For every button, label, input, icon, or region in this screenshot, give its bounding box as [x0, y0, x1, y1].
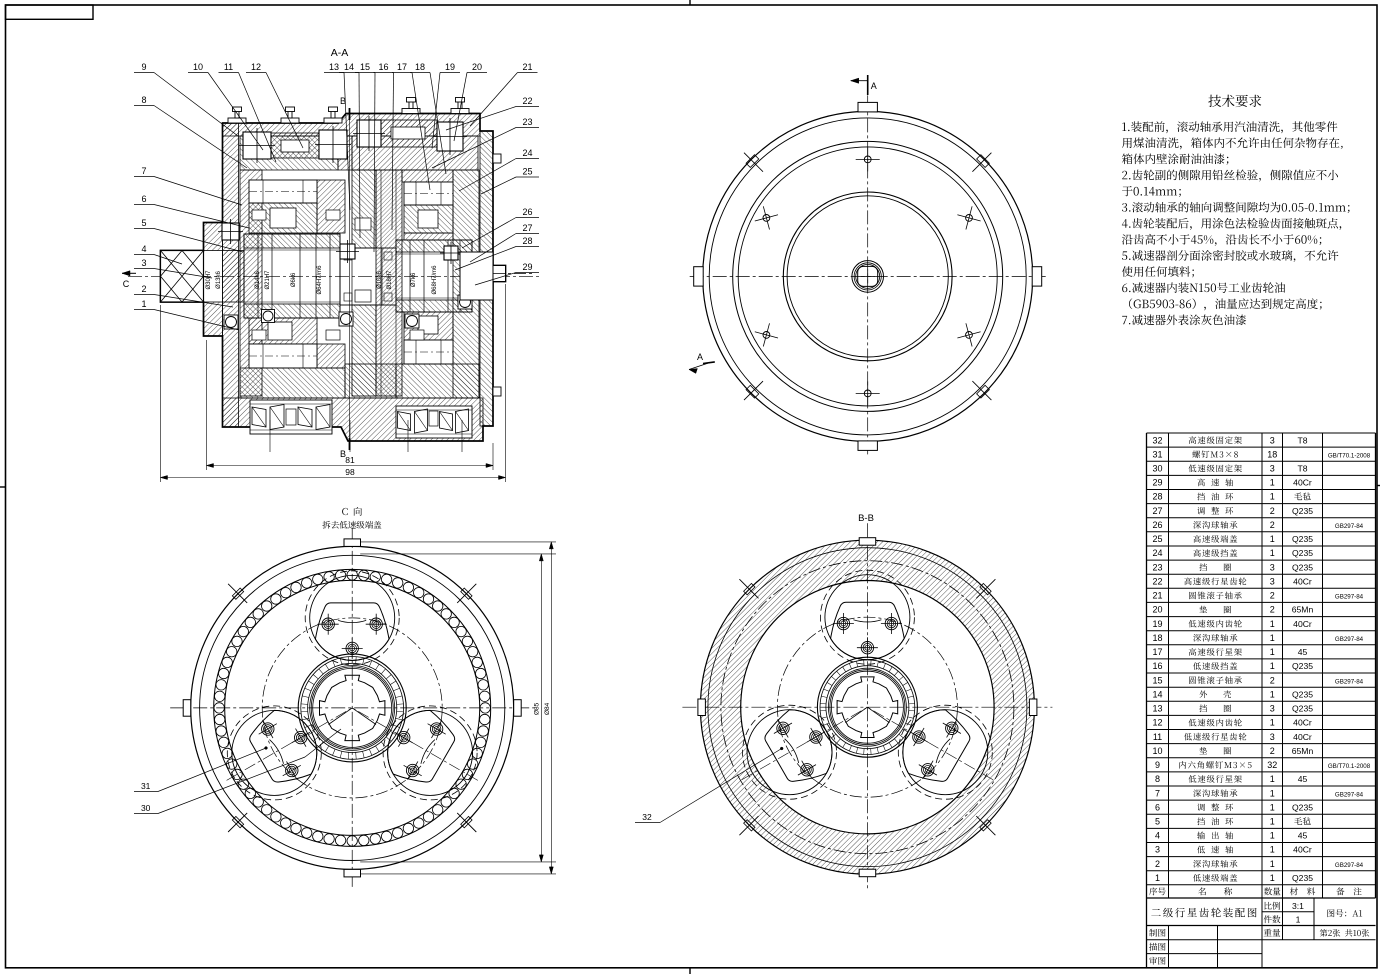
- svg-text:19: 19: [445, 62, 455, 72]
- svg-text:1: 1: [1296, 915, 1301, 925]
- svg-text:2: 2: [1270, 746, 1275, 756]
- svg-text:17: 17: [1152, 647, 1162, 657]
- svg-text:2: 2: [141, 284, 146, 294]
- svg-text:GB297-84: GB297-84: [1335, 678, 1364, 685]
- svg-text:24: 24: [1152, 548, 1162, 558]
- svg-text:21: 21: [522, 62, 532, 72]
- svg-text:65Mn: 65Mn: [1292, 605, 1314, 615]
- svg-text:20: 20: [472, 62, 482, 72]
- svg-text:13: 13: [329, 62, 339, 72]
- svg-text:32: 32: [1267, 760, 1277, 770]
- svg-text:C: C: [123, 279, 130, 289]
- svg-text:3: 3: [141, 258, 146, 268]
- svg-text:12: 12: [251, 62, 261, 72]
- svg-text:GB297-84: GB297-84: [1335, 636, 1364, 643]
- svg-text:22: 22: [522, 96, 532, 106]
- svg-text:23: 23: [522, 117, 532, 127]
- svg-text:Q235: Q235: [1292, 873, 1313, 883]
- svg-text:45: 45: [1298, 774, 1308, 784]
- svg-text:1: 1: [1270, 774, 1275, 784]
- svg-text:1: 1: [1270, 718, 1275, 728]
- svg-text:14: 14: [344, 62, 354, 72]
- svg-text:18: 18: [415, 62, 425, 72]
- svg-text:3: 3: [1155, 845, 1160, 855]
- svg-text:40Cr: 40Cr: [1293, 619, 1312, 629]
- svg-text:65Mn: 65Mn: [1292, 746, 1314, 756]
- svg-text:Ø6k6: Ø6k6: [291, 272, 297, 287]
- svg-text:13: 13: [1152, 704, 1162, 714]
- svg-text:1: 1: [1270, 534, 1275, 544]
- svg-text:5: 5: [1155, 817, 1160, 827]
- svg-text:30: 30: [141, 803, 151, 813]
- svg-text:45: 45: [1298, 647, 1308, 657]
- svg-text:1: 1: [1270, 845, 1275, 855]
- svg-text:Q235: Q235: [1292, 802, 1313, 812]
- svg-text:14: 14: [1152, 689, 1162, 699]
- svg-text:40Cr: 40Cr: [1293, 718, 1312, 728]
- svg-text:1: 1: [141, 299, 146, 309]
- svg-text:1: 1: [1270, 647, 1275, 657]
- svg-text:A: A: [871, 81, 877, 91]
- svg-text:2: 2: [1270, 506, 1275, 516]
- svg-text:2: 2: [1270, 675, 1275, 685]
- svg-text:10: 10: [1152, 746, 1162, 756]
- svg-text:Q235: Q235: [1292, 562, 1313, 572]
- svg-text:1: 1: [1155, 873, 1160, 883]
- svg-text:Ø21H7: Ø21H7: [265, 270, 271, 290]
- svg-text:B-B: B-B: [858, 513, 874, 524]
- svg-text:1: 1: [1270, 873, 1275, 883]
- svg-text:5: 5: [141, 218, 146, 228]
- svg-text:1: 1: [1270, 619, 1275, 629]
- svg-text:31: 31: [1152, 449, 1162, 459]
- svg-text:1: 1: [1270, 661, 1275, 671]
- svg-text:23: 23: [1152, 562, 1162, 572]
- svg-text:GB/T70.1-2008: GB/T70.1-2008: [1328, 452, 1371, 459]
- svg-text:16: 16: [378, 62, 388, 72]
- svg-text:6: 6: [1155, 802, 1160, 812]
- svg-text:9: 9: [141, 62, 146, 72]
- svg-text:26: 26: [522, 207, 532, 217]
- svg-text:7: 7: [1155, 788, 1160, 798]
- svg-text:Ø18H7: Ø18H7: [387, 270, 393, 290]
- svg-text:22: 22: [1152, 577, 1162, 587]
- svg-text:10: 10: [193, 62, 203, 72]
- svg-text:A: A: [697, 352, 703, 362]
- svg-text:7: 7: [141, 166, 146, 176]
- svg-text:3: 3: [1270, 435, 1275, 445]
- svg-text:40Cr: 40Cr: [1293, 845, 1312, 855]
- svg-text:20: 20: [1152, 605, 1162, 615]
- svg-text:25: 25: [1152, 534, 1162, 544]
- svg-text:3: 3: [1270, 704, 1275, 714]
- svg-text:1: 1: [1270, 689, 1275, 699]
- svg-text:Ø85: Ø85: [534, 702, 541, 715]
- svg-text:GB297-84: GB297-84: [1335, 791, 1364, 798]
- svg-text:29: 29: [1152, 478, 1162, 488]
- svg-text:6: 6: [141, 194, 146, 204]
- svg-text:Q235: Q235: [1292, 506, 1313, 516]
- svg-text:1: 1: [1270, 788, 1275, 798]
- svg-text:15: 15: [1152, 675, 1162, 685]
- svg-text:3: 3: [1270, 732, 1275, 742]
- svg-text:Ø14k6: Ø14k6: [255, 271, 261, 289]
- svg-text:GB297-84: GB297-84: [1335, 523, 1364, 530]
- svg-text:1: 1: [1270, 633, 1275, 643]
- svg-text:2: 2: [1270, 605, 1275, 615]
- svg-text:15: 15: [360, 62, 370, 72]
- svg-text:27: 27: [522, 223, 532, 233]
- svg-text:1: 1: [1270, 478, 1275, 488]
- svg-text:Ø10k6: Ø10k6: [377, 271, 383, 289]
- svg-text:18: 18: [1267, 449, 1277, 459]
- svg-text:Ø30H7: Ø30H7: [206, 270, 212, 290]
- svg-text:1: 1: [1270, 859, 1275, 869]
- svg-text:2: 2: [1155, 859, 1160, 869]
- svg-text:1: 1: [1270, 802, 1275, 812]
- svg-text:40Cr: 40Cr: [1293, 478, 1312, 488]
- svg-text:29: 29: [522, 262, 532, 272]
- svg-text:8: 8: [141, 95, 146, 105]
- svg-text:2: 2: [1270, 591, 1275, 601]
- svg-text:Q235: Q235: [1292, 534, 1313, 544]
- svg-text:3:1: 3:1: [1292, 901, 1304, 911]
- svg-text:3: 3: [1270, 562, 1275, 572]
- svg-text:Ø64H7/m6: Ø64H7/m6: [317, 265, 323, 295]
- svg-text:GB297-84: GB297-84: [1335, 862, 1364, 869]
- svg-text:4: 4: [1155, 831, 1160, 841]
- svg-text:T8: T8: [1297, 464, 1307, 474]
- svg-text:Q235: Q235: [1292, 689, 1313, 699]
- svg-text:24: 24: [522, 148, 532, 158]
- svg-text:Q235: Q235: [1292, 704, 1313, 714]
- svg-text:1: 1: [1270, 548, 1275, 558]
- svg-text:40Cr: 40Cr: [1293, 577, 1312, 587]
- svg-text:3: 3: [1270, 577, 1275, 587]
- svg-text:27: 27: [1152, 506, 1162, 516]
- svg-text:Ø84: Ø84: [544, 702, 551, 715]
- svg-text:19: 19: [1152, 619, 1162, 629]
- svg-text:16: 16: [1152, 661, 1162, 671]
- svg-text:GB/T70.1-2008: GB/T70.1-2008: [1328, 763, 1371, 770]
- svg-text:A-A: A-A: [331, 47, 349, 59]
- svg-text:4: 4: [141, 244, 146, 254]
- svg-text:3: 3: [1270, 464, 1275, 474]
- svg-text:31: 31: [141, 781, 151, 791]
- svg-text:21: 21: [1152, 591, 1162, 601]
- svg-text:2: 2: [1270, 520, 1275, 530]
- svg-text:81: 81: [345, 455, 355, 465]
- svg-text:18: 18: [1152, 633, 1162, 643]
- svg-text:GB297-84: GB297-84: [1335, 594, 1364, 601]
- svg-text:40Cr: 40Cr: [1293, 732, 1312, 742]
- svg-text:11: 11: [1153, 732, 1162, 742]
- svg-text:1: 1: [1270, 831, 1275, 841]
- svg-text:25: 25: [522, 167, 532, 177]
- svg-text:Q235: Q235: [1292, 661, 1313, 671]
- svg-text:98: 98: [345, 467, 355, 477]
- svg-text:Ø13k6: Ø13k6: [216, 271, 222, 289]
- svg-text:11: 11: [224, 62, 233, 72]
- svg-text:9: 9: [1155, 760, 1160, 770]
- svg-text:12: 12: [1152, 718, 1162, 728]
- svg-text:Ø68H7/m6: Ø68H7/m6: [432, 265, 438, 295]
- svg-text:28: 28: [1152, 492, 1162, 502]
- svg-text:1: 1: [1270, 817, 1275, 827]
- svg-text:Ø7k6: Ø7k6: [411, 272, 417, 287]
- svg-text:32: 32: [642, 812, 652, 822]
- svg-text:8: 8: [1155, 774, 1160, 784]
- svg-text:17: 17: [397, 62, 407, 72]
- svg-text:30: 30: [1152, 464, 1162, 474]
- svg-text:26: 26: [1152, 520, 1162, 530]
- svg-text:1: 1: [1270, 492, 1275, 502]
- svg-text:T8: T8: [1297, 435, 1307, 445]
- svg-text:28: 28: [522, 236, 532, 246]
- svg-text:32: 32: [1152, 435, 1162, 445]
- svg-text:45: 45: [1298, 831, 1308, 841]
- svg-text:Q235: Q235: [1292, 548, 1313, 558]
